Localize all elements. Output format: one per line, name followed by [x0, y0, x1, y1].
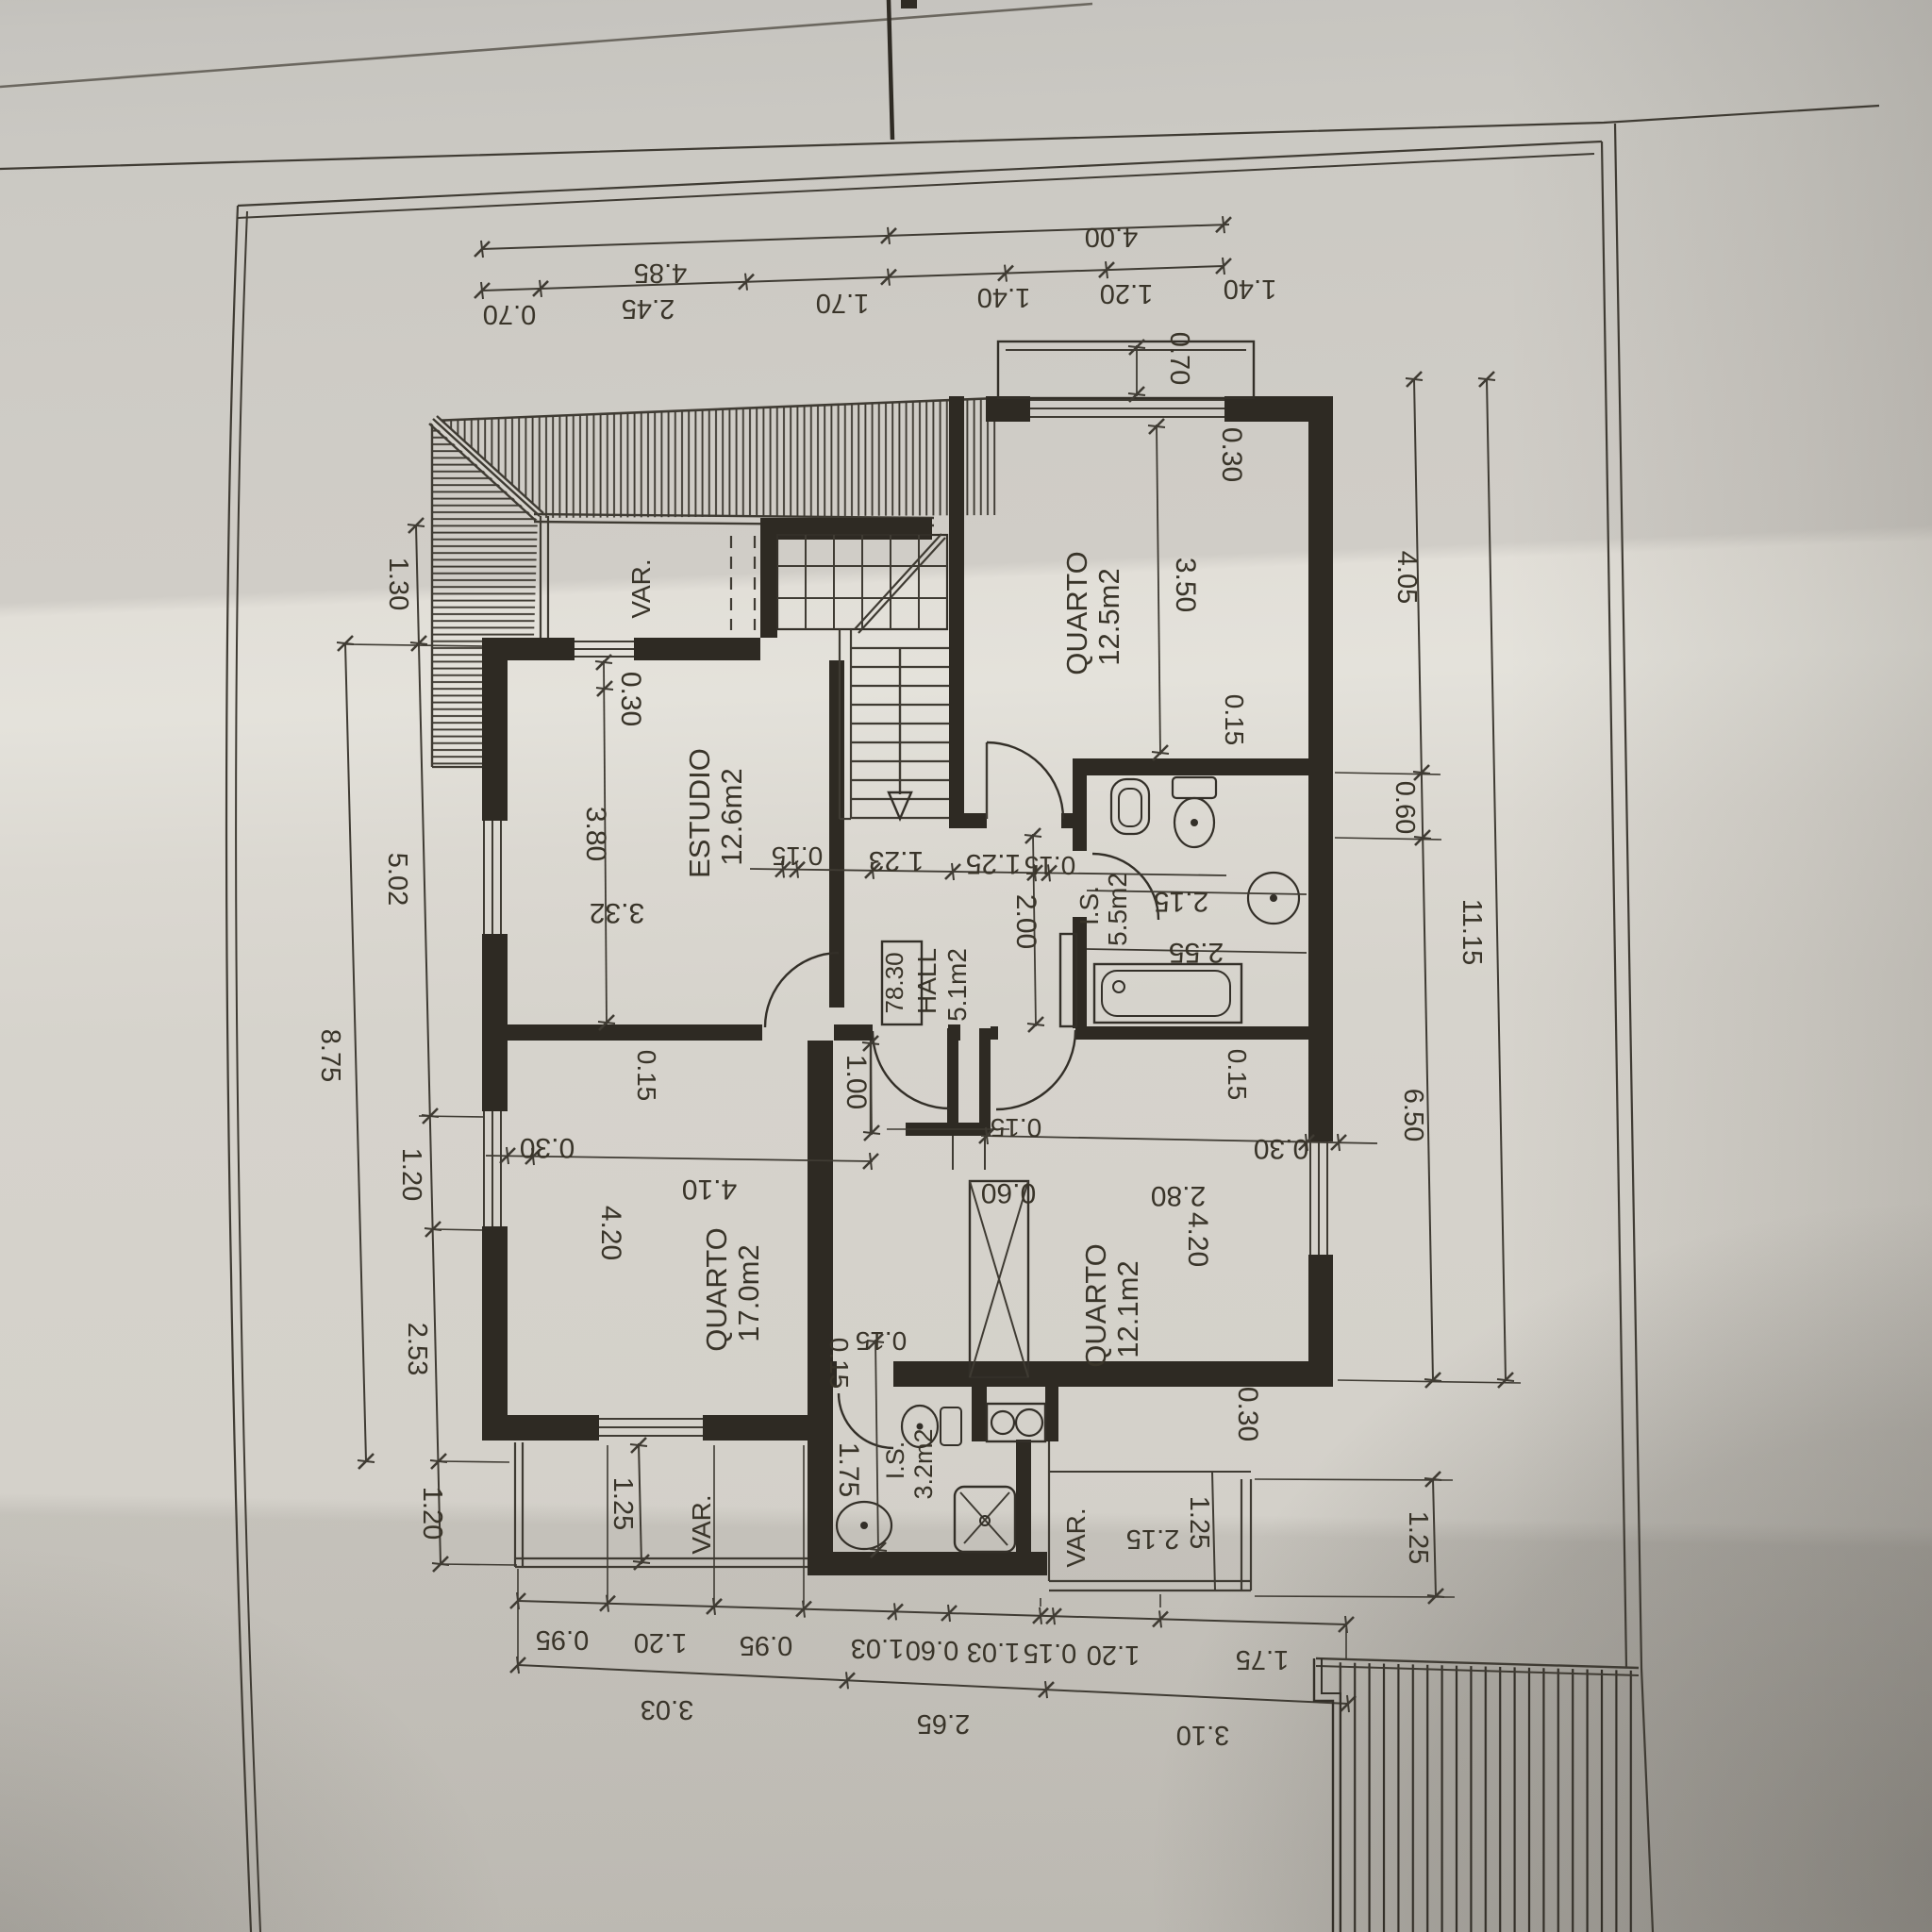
svg-text:2.53: 2.53 — [402, 1323, 432, 1375]
svg-text:5.02: 5.02 — [382, 853, 412, 906]
svg-text:1.25: 1.25 — [608, 1477, 638, 1530]
svg-text:1.03: 1.03 — [967, 1637, 1020, 1667]
svg-text:1.30: 1.30 — [383, 558, 413, 610]
svg-text:0.95: 0.95 — [536, 1624, 589, 1655]
svg-text:11.15: 11.15 — [1457, 899, 1487, 965]
svg-text:0.15: 0.15 — [856, 1326, 908, 1356]
svg-text:3.50: 3.50 — [1170, 558, 1201, 612]
svg-text:2.80: 2.80 — [1151, 1180, 1206, 1211]
svg-text:1.20: 1.20 — [417, 1487, 447, 1540]
svg-text:3.10: 3.10 — [1176, 1720, 1229, 1750]
svg-text:1.25: 1.25 — [966, 848, 1021, 879]
svg-text:6.50: 6.50 — [1398, 1089, 1428, 1141]
svg-text:0.70: 0.70 — [483, 299, 536, 329]
svg-text:1.20: 1.20 — [396, 1148, 426, 1201]
svg-text:2.65: 2.65 — [917, 1708, 970, 1739]
svg-text:I.S.: I.S. — [881, 1441, 909, 1480]
svg-text:0.15: 0.15 — [1024, 851, 1076, 880]
svg-text:QUARTO: QUARTO — [1079, 1243, 1112, 1368]
svg-text:1.75: 1.75 — [833, 1442, 864, 1497]
svg-text:1.40: 1.40 — [1224, 274, 1276, 304]
svg-text:1.25: 1.25 — [1403, 1511, 1433, 1564]
svg-text:0.30: 0.30 — [520, 1132, 575, 1163]
svg-text:12.5m2: 12.5m2 — [1092, 568, 1125, 665]
svg-text:1.03: 1.03 — [851, 1633, 904, 1663]
svg-text:I.S.: I.S. — [1074, 886, 1104, 925]
svg-text:3.80: 3.80 — [580, 807, 611, 861]
svg-text:0.15: 0.15 — [824, 1338, 854, 1390]
svg-text:12.6m2: 12.6m2 — [715, 768, 748, 865]
svg-text:4.10: 4.10 — [682, 1174, 737, 1205]
svg-text:8.75: 8.75 — [315, 1029, 345, 1082]
svg-text:2.15: 2.15 — [1154, 886, 1208, 917]
svg-text:4.20: 4.20 — [595, 1206, 626, 1260]
svg-text:0.15: 0.15 — [991, 1113, 1042, 1142]
svg-text:0.15: 0.15 — [1024, 1638, 1076, 1668]
svg-text:1.00: 1.00 — [841, 1055, 872, 1109]
svg-text:5.5m2: 5.5m2 — [1103, 873, 1132, 946]
svg-text:1.70: 1.70 — [816, 288, 869, 318]
svg-text:0.60: 0.60 — [1390, 781, 1420, 834]
svg-text:1.23: 1.23 — [869, 845, 924, 876]
svg-text:0.15: 0.15 — [772, 841, 824, 871]
svg-text:1.20: 1.20 — [634, 1627, 687, 1657]
svg-text:0.60: 0.60 — [906, 1635, 958, 1665]
svg-text:12.1m2: 12.1m2 — [1111, 1260, 1144, 1357]
svg-text:3.32: 3.32 — [590, 897, 644, 928]
svg-text:0.30: 0.30 — [615, 672, 646, 726]
svg-text:0.30: 0.30 — [1254, 1133, 1308, 1164]
svg-text:78.30: 78.30 — [880, 952, 908, 1013]
svg-text:4.00: 4.00 — [1085, 222, 1138, 252]
svg-text:VAR.: VAR. — [687, 1494, 716, 1554]
svg-text:VAR.: VAR. — [1061, 1507, 1091, 1567]
svg-text:2.00: 2.00 — [1010, 894, 1041, 949]
svg-text:3.03: 3.03 — [641, 1694, 693, 1724]
svg-text:17.0m2: 17.0m2 — [732, 1244, 765, 1341]
svg-text:0.95: 0.95 — [740, 1630, 792, 1660]
svg-text:0.15: 0.15 — [632, 1050, 661, 1102]
svg-text:3.2m2: 3.2m2 — [909, 1428, 938, 1499]
svg-text:1.20: 1.20 — [1100, 278, 1153, 308]
svg-text:0.30: 0.30 — [1216, 427, 1247, 482]
svg-text:HALL: HALL — [912, 948, 941, 1014]
svg-text:VAR.: VAR. — [626, 558, 656, 618]
svg-text:2.55: 2.55 — [1169, 937, 1224, 968]
svg-text:QUARTO: QUARTO — [700, 1227, 733, 1352]
svg-text:0.15: 0.15 — [1220, 694, 1249, 746]
svg-text:QUARTO: QUARTO — [1060, 551, 1093, 675]
svg-text:1.25: 1.25 — [1184, 1496, 1214, 1549]
svg-text:0.70: 0.70 — [1164, 332, 1194, 385]
svg-text:0.30: 0.30 — [1232, 1387, 1263, 1441]
svg-text:1.20: 1.20 — [1087, 1640, 1140, 1670]
svg-text:0.15: 0.15 — [1223, 1049, 1252, 1101]
svg-text:1.40: 1.40 — [977, 282, 1030, 312]
svg-text:2.15: 2.15 — [1126, 1524, 1179, 1554]
svg-text:4.20: 4.20 — [1182, 1212, 1213, 1267]
svg-text:ESTUDIO: ESTUDIO — [683, 748, 716, 878]
svg-text:2.45: 2.45 — [622, 293, 675, 324]
svg-text:1.75: 1.75 — [1236, 1644, 1289, 1674]
svg-text:5.1m2: 5.1m2 — [942, 948, 972, 1022]
svg-text:4.05: 4.05 — [1391, 551, 1422, 604]
svg-text:0.60: 0.60 — [981, 1177, 1036, 1208]
